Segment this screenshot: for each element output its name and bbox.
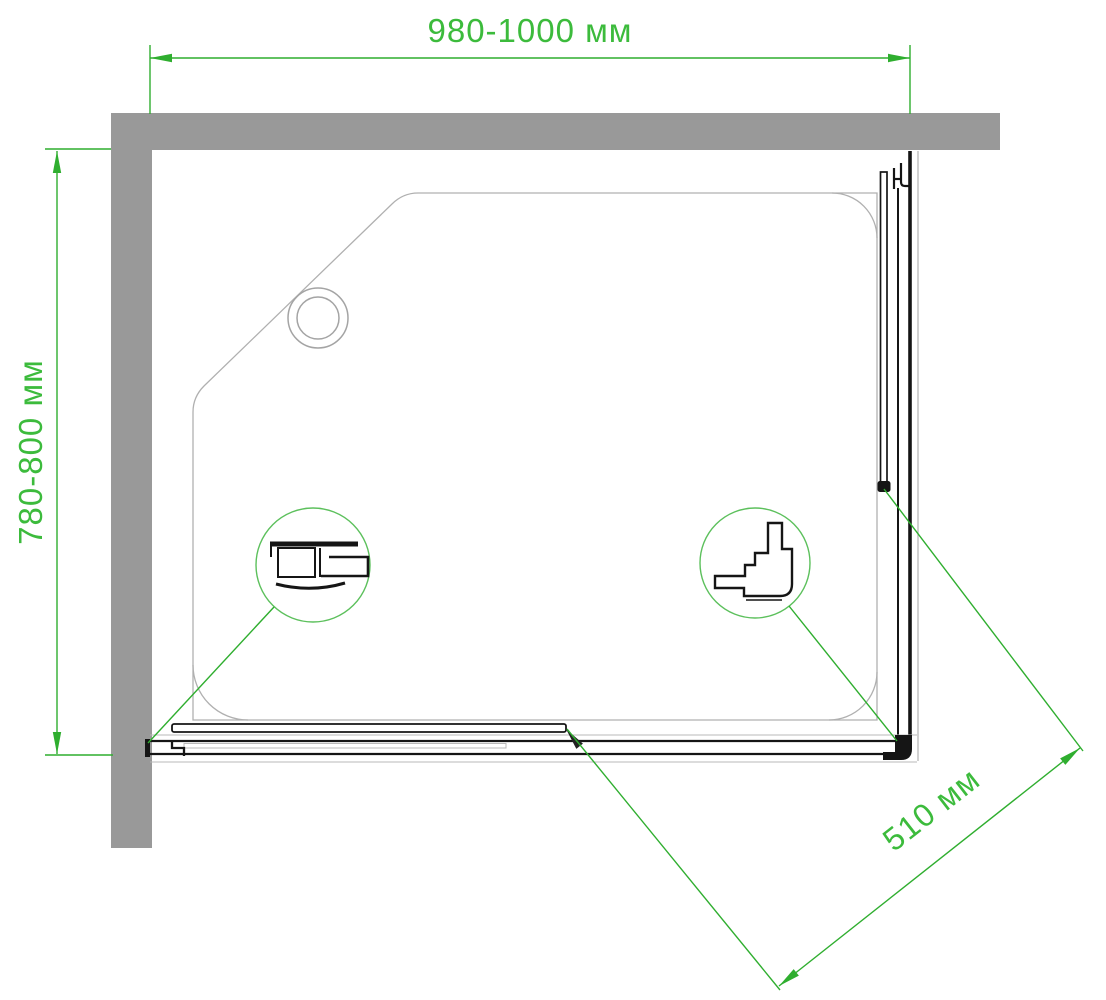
fixed-glass-panel — [881, 172, 888, 485]
tray-corner-arc-top-right — [832, 193, 877, 238]
right-side-panel-assembly — [878, 151, 919, 761]
rail-corner-connector — [883, 735, 912, 760]
dimension-door-opening: 510 мм — [563, 489, 1083, 990]
tray-corner-arc-bottom-left — [193, 665, 248, 720]
detail-leader-left — [148, 607, 274, 743]
width-dimension-label: 980-1000 мм — [427, 12, 632, 49]
extension-line — [884, 489, 1083, 751]
sliding-door-front-leaf — [172, 724, 566, 732]
dimension-depth: 780-800 мм — [12, 149, 113, 755]
detail-leader-right — [789, 606, 897, 741]
shower-enclosure-plan-drawing: 980-1000 мм 780-800 мм 510 мм — [0, 0, 1106, 1000]
arrow-up-icon — [53, 151, 61, 173]
detail-circle-left — [256, 508, 370, 622]
glass-panel-end-cap — [878, 481, 891, 492]
depth-dimension-label: 780-800 мм — [12, 359, 49, 545]
door-dimension-label: 510 мм — [876, 761, 987, 858]
detail-callouts — [148, 508, 897, 743]
shower-tray — [193, 193, 877, 720]
tray-corner-arc-bottom-right — [829, 672, 877, 720]
top-wall-bracket — [894, 163, 909, 189]
extension-line — [567, 729, 780, 990]
drawing-canvas: 980-1000 мм 780-800 мм 510 мм — [0, 0, 1106, 1000]
arrow-left-icon — [150, 54, 172, 62]
drain-icon — [288, 288, 348, 348]
corner-profile-icon — [715, 523, 792, 600]
walls — [111, 113, 1000, 848]
tray-outline — [193, 193, 877, 720]
top-wall — [111, 113, 1000, 150]
arrow-down-icon — [53, 732, 61, 754]
left-wall — [111, 113, 152, 848]
bottom-rail-assembly — [145, 724, 917, 762]
arrow-right-icon — [888, 54, 910, 62]
dimension-line — [779, 748, 1080, 986]
door-roller-profile-icon — [270, 544, 368, 588]
dimension-width: 980-1000 мм — [150, 12, 910, 114]
sliding-door-rear-leaf — [184, 744, 506, 749]
